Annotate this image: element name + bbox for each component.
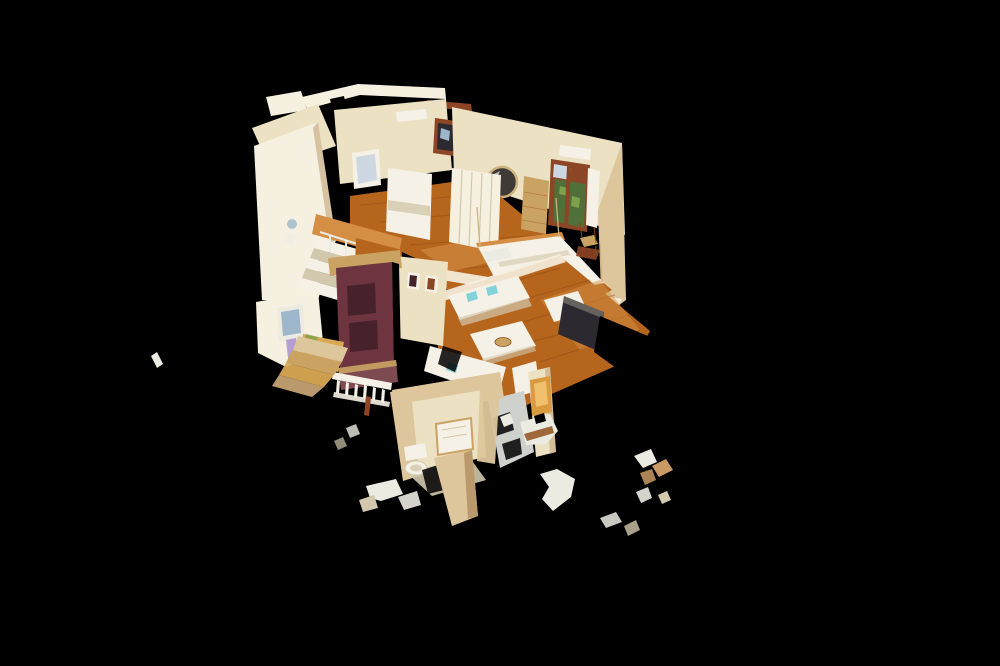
fragment bbox=[346, 424, 360, 438]
toilet-seat bbox=[410, 465, 422, 472]
fragment bbox=[624, 520, 640, 536]
dresser bbox=[521, 176, 549, 234]
picture-art bbox=[281, 309, 301, 336]
bath-right-wall bbox=[477, 384, 500, 464]
fragment bbox=[658, 491, 671, 504]
fragment bbox=[636, 487, 652, 503]
front-door-panel bbox=[347, 283, 376, 316]
hall-frame-art bbox=[427, 278, 435, 290]
hall-wall bbox=[393, 256, 448, 346]
fragment bbox=[334, 437, 347, 450]
dollhouse-3d-render bbox=[0, 0, 1000, 666]
picture-art bbox=[356, 154, 377, 184]
baluster bbox=[336, 380, 340, 394]
viewer-canvas[interactable] bbox=[0, 0, 1000, 666]
fragment bbox=[600, 512, 622, 528]
fragment bbox=[640, 469, 656, 485]
lit-doorway-glow bbox=[534, 381, 548, 407]
lower-left-room bbox=[256, 291, 348, 397]
wall-light bbox=[287, 219, 297, 229]
fragment bbox=[634, 449, 657, 468]
fragment bbox=[540, 469, 575, 511]
fragment bbox=[151, 352, 163, 368]
hall-frame-art bbox=[409, 275, 417, 287]
garden-highlight bbox=[571, 196, 580, 208]
front-door-panel bbox=[349, 320, 378, 352]
wardrobe bbox=[449, 168, 501, 252]
table-bowl bbox=[495, 338, 511, 347]
